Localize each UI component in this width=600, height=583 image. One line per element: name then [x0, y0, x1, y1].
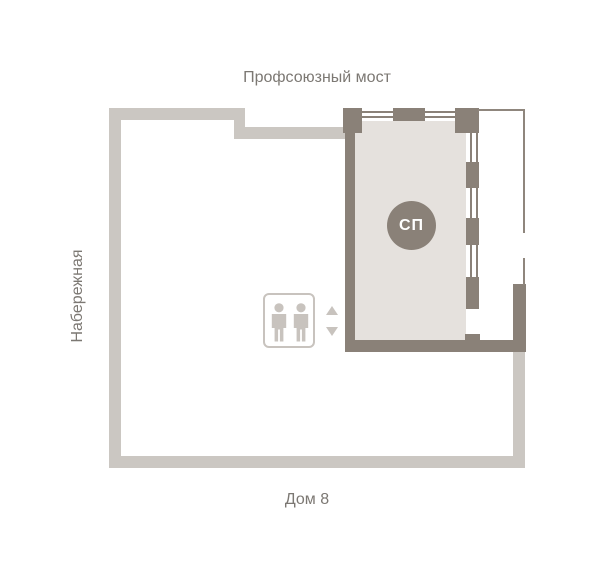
street-label-left: Набережная: [69, 217, 87, 375]
unit-wall-right-segment-3: [466, 277, 479, 309]
terrace-outline-right-upper: [523, 109, 525, 233]
window-line: [470, 188, 472, 218]
unit-wall-bottom: [345, 340, 526, 352]
building-label-bottom: Дом 8: [157, 491, 457, 509]
terrace-outline-top: [478, 109, 525, 111]
building-outline-wall-top-a: [109, 108, 245, 120]
window-line: [470, 133, 472, 162]
elevator-persons-icon: [268, 303, 312, 342]
unit-wall-bottom-notch: [465, 334, 480, 344]
window-line: [425, 111, 455, 113]
window-line: [476, 245, 478, 277]
unit-wall-right-l: [513, 284, 526, 352]
unit-wall-right-segment-2: [466, 218, 479, 245]
person-icon: [272, 303, 286, 341]
window-line: [362, 116, 393, 118]
terrace-outline-right-lower: [523, 258, 525, 285]
building-outline-wall-left: [109, 108, 121, 468]
window-line: [362, 111, 393, 113]
building-outline-wall-right: [513, 352, 525, 468]
unit-wall-top-segment: [393, 108, 425, 121]
unit-badge[interactable]: СП: [387, 201, 436, 250]
building-outline-wall-top-b: [234, 127, 345, 139]
unit-wall-right-segment-1: [466, 162, 479, 188]
person-icon: [294, 303, 308, 341]
unit-wall-corner-tr: [455, 108, 479, 133]
arrow-down-icon: [326, 327, 338, 336]
building-outline-wall-bottom: [109, 456, 525, 468]
window-line: [476, 188, 478, 218]
elevator-icon: [263, 293, 315, 348]
window-line: [476, 133, 478, 162]
unit-wall-corner-tl: [343, 108, 362, 133]
window-line: [470, 245, 472, 277]
street-label-top: Профсоюзный мост: [167, 69, 467, 87]
unit-wall-left: [345, 108, 355, 352]
floor-plan-canvas: Профсоюзный мост Набережная Дом 8: [0, 0, 600, 583]
window-line: [425, 116, 455, 118]
arrow-up-icon: [326, 306, 338, 315]
